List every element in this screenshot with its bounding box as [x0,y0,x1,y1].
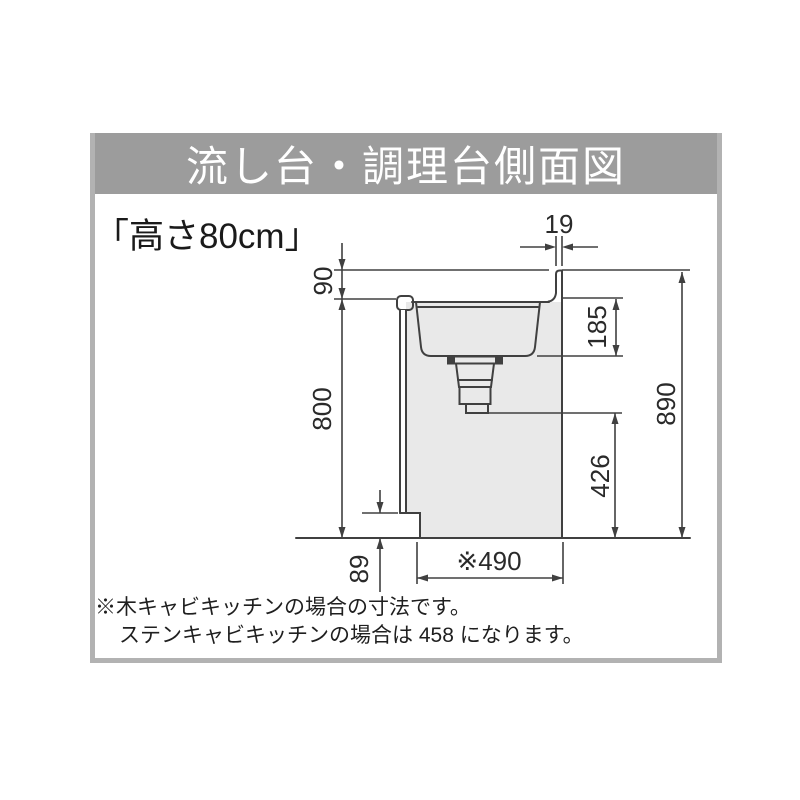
footnote-line2: ステンキャビキッチンの場合は 458 になります。 [119,619,584,649]
footnote-line1: ※木キャビキッチンの場合の寸法です。 [95,591,471,621]
height-label: 「高さ80cm」 [94,208,320,259]
title-bar: 流し台・調理台側面図 [95,133,717,194]
page-title: 流し台・調理台側面図 [186,133,626,194]
